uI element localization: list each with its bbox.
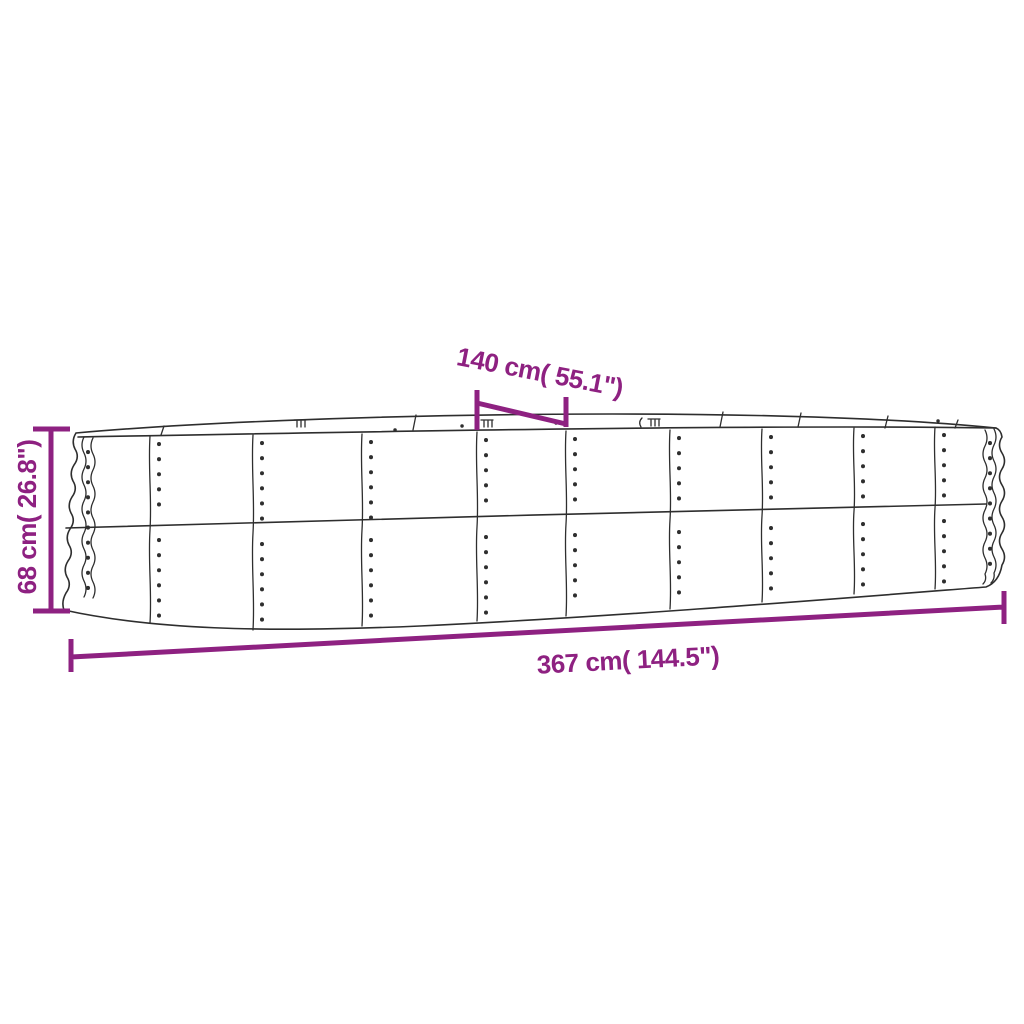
rivet-dots (88, 435, 990, 623)
mid-seam (66, 504, 986, 528)
width-dimension-line (477, 390, 566, 430)
diagram-canvas: 68 cm( 26.8") 140 cm( 55.1") 367 cm( 144… (0, 0, 1024, 1024)
clip-icon (640, 418, 660, 427)
clip-icon (481, 420, 493, 427)
height-dimension-label: 68 cm( 26.8") (12, 440, 42, 595)
width-dimension-label: 140 cm( 55.1") (454, 341, 625, 403)
right-corrugation (983, 429, 996, 584)
planter-line-drawing (63, 412, 1005, 630)
length-dimension-label: 367 cm( 144.5") (536, 640, 720, 680)
length-dimension: 367 cm( 144.5") (71, 591, 1004, 680)
dimension-annotations: 68 cm( 26.8") 140 cm( 55.1") 367 cm( 144… (12, 341, 1004, 680)
clip-icon (294, 420, 306, 427)
height-dimension: 68 cm( 26.8") (12, 429, 70, 611)
rim-front-edge (78, 427, 996, 437)
width-dimension: 140 cm( 55.1") (454, 341, 625, 430)
planter-outline (63, 414, 1005, 629)
planter-dimension-diagram: 68 cm( 26.8") 140 cm( 55.1") 367 cm( 144… (0, 0, 1024, 1024)
